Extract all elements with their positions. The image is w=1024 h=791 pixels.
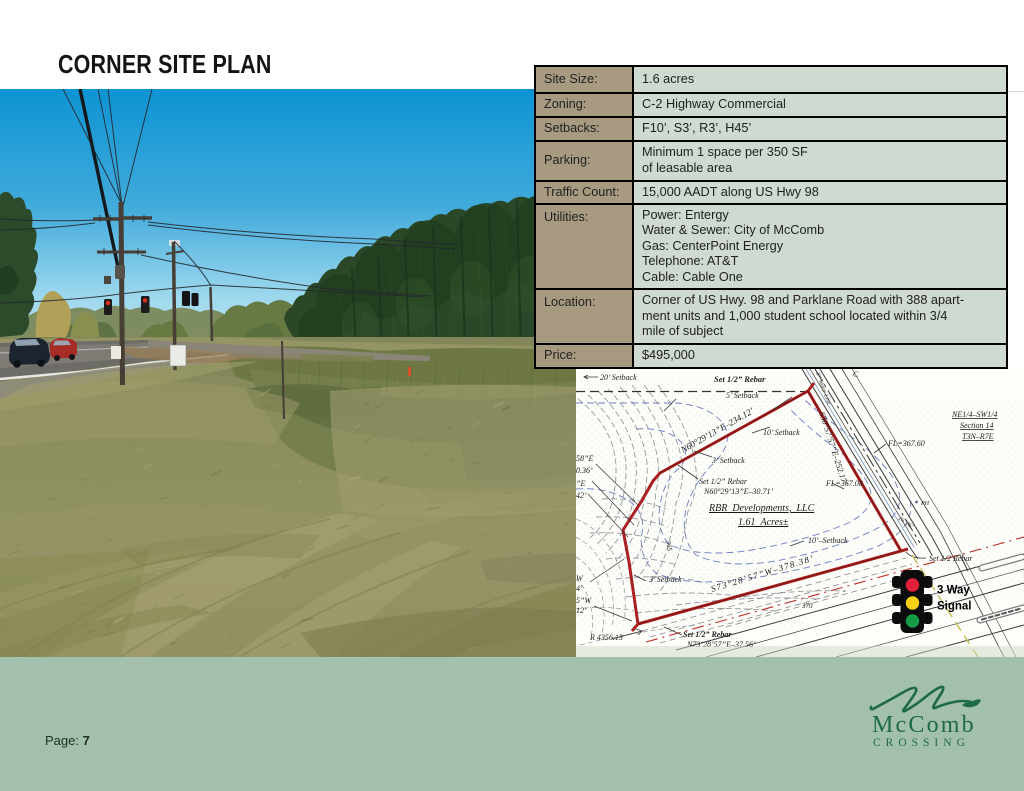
- svg-text:FL=367.60: FL=367.60: [887, 439, 925, 448]
- svg-text:”E: ”E: [576, 479, 585, 488]
- svg-text:CROSSING: CROSSING: [873, 737, 970, 749]
- svg-text:Section 14: Section 14: [960, 421, 994, 430]
- svg-text:10’ Setback: 10’ Setback: [763, 428, 800, 437]
- svg-text:370: 370: [801, 602, 813, 610]
- svg-text:Set 1/2 Rebar: Set 1/2 Rebar: [929, 554, 973, 563]
- svg-text:McComb: McComb: [872, 712, 976, 738]
- svg-text:58”E: 58”E: [576, 454, 593, 463]
- svg-text:1.61 Acres±: 1.61 Acres±: [738, 517, 789, 528]
- svg-text:20’ Setback: 20’ Setback: [600, 373, 637, 382]
- svg-text:NE1/4–SW1/4: NE1/4–SW1/4: [951, 410, 997, 419]
- svg-text:Set 1/2” Rebar: Set 1/2” Rebar: [683, 630, 732, 639]
- svg-text:N60°29’13”E–30.71’: N60°29’13”E–30.71’: [703, 487, 774, 496]
- svg-text:C: C: [853, 370, 859, 379]
- svg-text:10’–Setback: 10’–Setback: [808, 536, 848, 545]
- svg-text:12’: 12’: [576, 606, 587, 615]
- svg-text:0.36’: 0.36’: [576, 466, 593, 475]
- svg-text:42’: 42’: [576, 491, 587, 500]
- svg-text:4’: 4’: [576, 584, 583, 593]
- svg-text:RBR Developments, LLC: RBR Developments, LLC: [708, 503, 815, 514]
- svg-text:5’ Setback: 5’ Setback: [726, 391, 759, 400]
- svg-text:R 4356.13: R 4356.13: [589, 633, 623, 642]
- svg-text:3’ Setback: 3’ Setback: [648, 575, 682, 584]
- svg-text:3 Way: 3 Way: [937, 585, 970, 597]
- svg-text:Signal: Signal: [937, 601, 972, 613]
- svg-text:3’ Setback: 3’ Setback: [711, 456, 745, 465]
- svg-text:Set 1/2” Rebar: Set 1/2” Rebar: [699, 477, 748, 486]
- svg-text:Set 1/2” Rebar: Set 1/2” Rebar: [714, 374, 766, 384]
- svg-text:PH: PH: [920, 501, 930, 507]
- svg-text:T3N–R7E: T3N–R7E: [962, 432, 994, 441]
- svg-text:5”W: 5”W: [576, 596, 592, 605]
